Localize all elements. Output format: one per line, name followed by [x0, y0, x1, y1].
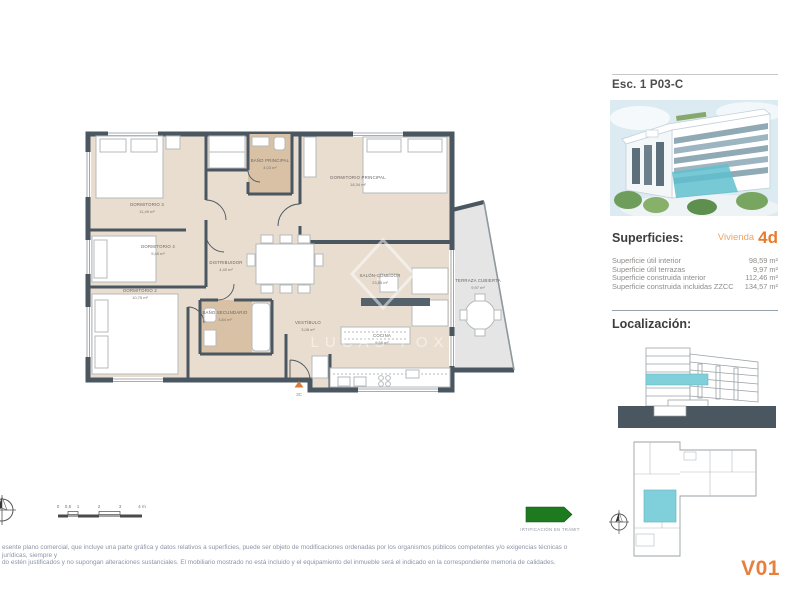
superficies-table: Superficie útil interior 98,59 m² Superf…	[612, 257, 778, 291]
entrance-marker: 3C	[295, 381, 304, 397]
scale-bar: 0 0,5 1 2 3 4 m	[54, 498, 150, 526]
ground-mass	[618, 406, 776, 428]
room-label: DISTRIBUIDOR	[209, 260, 242, 265]
room-area: 9,97 m²	[471, 285, 485, 290]
vivienda-value: 4d	[758, 230, 778, 245]
superficie-label: Superficie construida incluidas ZZCC	[612, 283, 734, 292]
room-area: 11,49 m²	[139, 209, 155, 214]
superficies-row: Superficie construida incluidas ZZCC 134…	[612, 283, 778, 292]
room-label: TERRAZA CUBIERTA	[455, 278, 501, 283]
room-label: DORMITORIO 3	[130, 202, 164, 207]
room-area: 23,65 m²	[372, 280, 388, 285]
highlighted-unit	[644, 490, 676, 522]
room-label: DORMITORIO 4	[141, 244, 175, 249]
room-area: 3,84 m²	[218, 317, 232, 322]
room-label: DORMITORIO PRINCIPAL	[330, 175, 386, 180]
disclaimer-line-2: do estén justificados y no supongan alte…	[2, 559, 568, 567]
plan-sheet: { "header": { "plan_ref": "Esc. 1 P03-C"…	[0, 0, 800, 600]
vivienda-label: Vivienda	[718, 232, 754, 245]
svg-text:1: 1	[77, 504, 80, 509]
header-rule	[612, 74, 778, 75]
section-rule	[612, 310, 778, 311]
svg-text:3: 3	[119, 504, 122, 509]
room-area: 10,75 m²	[132, 295, 148, 300]
building-render-image	[610, 100, 778, 216]
svg-text:2: 2	[98, 504, 101, 509]
superficies-header: Superficies: Vivienda 4d	[612, 230, 778, 245]
version-code: V01	[700, 557, 780, 581]
localizacion-heading: Localización:	[612, 317, 691, 331]
superficies-heading: Superficies:	[612, 231, 684, 245]
room-label: VESTÍBULO	[295, 320, 321, 325]
svg-text:0,5: 0,5	[65, 504, 72, 509]
disclaimer-text: esente plano comercial, que incluye una …	[2, 544, 568, 567]
room-area: 4,40 m²	[219, 267, 233, 272]
entrance-label: 3C	[296, 392, 303, 397]
certification-label: CERTIFICACIÓN EN TRÁMITE	[520, 527, 580, 532]
highlighted-floor	[646, 374, 708, 385]
room-label: BAÑO PRINCIPAL	[251, 158, 290, 163]
room-label: DORMITORIO 2	[123, 288, 157, 293]
room-label: BAÑO SECUNDARIO	[202, 310, 247, 315]
room-area: 9,55 m²	[375, 340, 389, 345]
svg-text:4 m: 4 m	[138, 504, 146, 509]
disclaimer-line-1: esente plano comercial, que incluye una …	[2, 544, 568, 559]
svg-text:0: 0	[57, 504, 60, 509]
floorplan-drawing: LF LUCAS FOX DORMITORIO 3 11,49 m² BAÑO …	[58, 122, 528, 407]
certification-arrow: CERTIFICACIÓN EN TRÁMITE	[520, 503, 580, 537]
plan-reference: Esc. 1 P03-C	[612, 79, 778, 91]
compass-icon-small	[609, 510, 629, 534]
room-label: SALÓN-COMEDOR	[359, 273, 400, 278]
room-label: COCINA	[373, 333, 391, 338]
room-area: 4,03 m²	[263, 165, 277, 170]
room-area: 9,46 m²	[151, 251, 165, 256]
room-area: 3,08 m²	[301, 327, 315, 332]
compass-icon	[0, 492, 20, 526]
green-arrow-icon	[526, 507, 572, 522]
location-plate-diagram	[606, 438, 766, 560]
room-area: 18,34 m²	[350, 182, 366, 187]
location-section-diagram	[608, 344, 780, 436]
superficie-value: 134,57 m²	[745, 283, 778, 292]
